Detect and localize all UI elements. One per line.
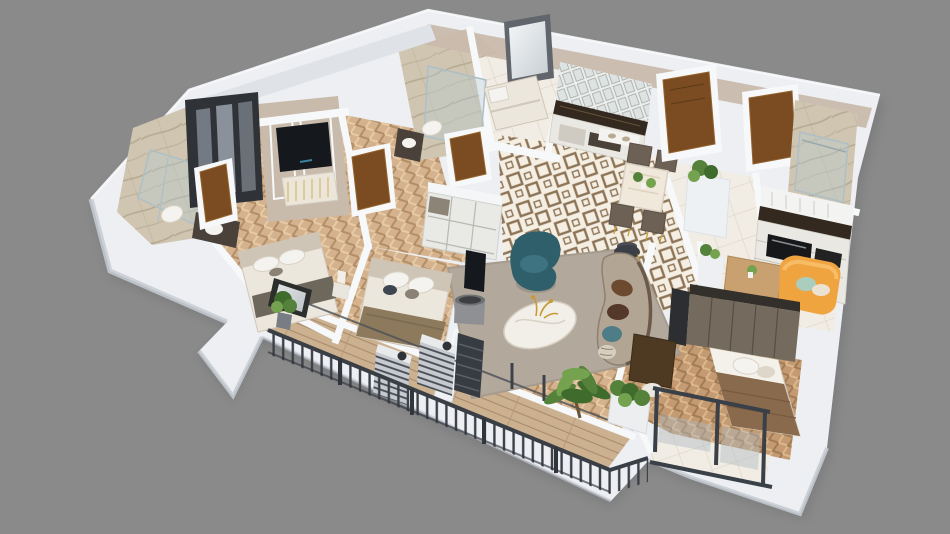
render-stage bbox=[0, 0, 950, 534]
plant-pot bbox=[276, 312, 292, 330]
window bbox=[504, 14, 554, 86]
swivel-armchair-teal bbox=[510, 231, 560, 293]
shell-pillow bbox=[598, 345, 616, 359]
drum-floor-lamp bbox=[454, 295, 485, 326]
bath-door bbox=[444, 126, 492, 188]
table-plant bbox=[646, 178, 656, 188]
tv-console bbox=[282, 172, 338, 206]
master-door bbox=[194, 158, 238, 230]
bed bbox=[356, 258, 452, 352]
parapet-tv bbox=[464, 250, 486, 292]
glass-shower bbox=[795, 132, 848, 202]
tv-screen bbox=[276, 122, 332, 172]
sink bbox=[402, 138, 416, 148]
entry-door-1 bbox=[656, 64, 722, 162]
pillow bbox=[812, 284, 830, 296]
floor-plan-svg bbox=[0, 0, 950, 534]
shower-bathroom bbox=[788, 100, 858, 208]
dining-table bbox=[619, 163, 668, 212]
pillow bbox=[607, 304, 629, 320]
pillow bbox=[602, 326, 622, 342]
hall-door bbox=[346, 143, 396, 217]
table-plant bbox=[633, 172, 643, 182]
